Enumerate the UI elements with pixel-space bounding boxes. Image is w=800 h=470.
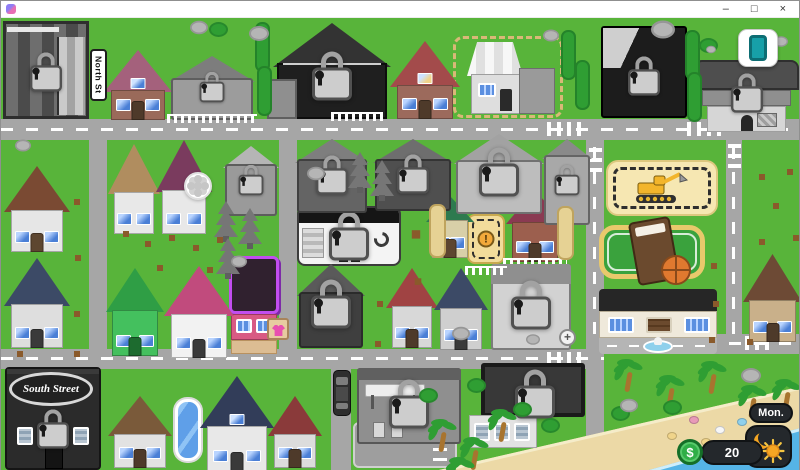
rock-icon — [543, 30, 559, 42]
tree-trunk — [247, 243, 253, 249]
pine-foliage — [702, 247, 726, 264]
bush-icon — [663, 400, 682, 415]
window — [146, 447, 161, 459]
car-roof — [336, 387, 348, 401]
locked-house[interactable] — [456, 134, 542, 214]
picket-fence — [331, 112, 383, 121]
window — [15, 231, 30, 243]
keyhole — [514, 300, 523, 309]
keyhole — [314, 299, 323, 308]
roof — [268, 396, 322, 436]
tree-trunk — [412, 230, 420, 238]
picket-fence — [167, 114, 257, 123]
window — [402, 98, 417, 110]
palm-tree-icon — [425, 416, 459, 452]
roof — [743, 254, 799, 302]
tree-trunk — [75, 255, 81, 261]
picket-fence — [465, 266, 507, 275]
lock-body — [239, 174, 264, 194]
window — [119, 447, 134, 459]
house-brown-roof[interactable] — [111, 396, 169, 468]
lock-shackle — [323, 155, 341, 169]
locked-south-street-bar[interactable]: South Street — [5, 367, 101, 470]
window — [44, 327, 59, 339]
pine-foliage — [65, 295, 89, 312]
door — [31, 233, 44, 252]
roof-line — [7, 27, 59, 32]
poplar-tree-icon — [429, 204, 446, 258]
tree-trunk — [793, 235, 799, 241]
tree-trunk — [74, 351, 80, 357]
poplar-tree-icon — [557, 206, 574, 260]
rock-icon — [249, 26, 269, 41]
bush-icon — [419, 388, 438, 403]
keyhole — [556, 177, 562, 183]
pine-tree-icon — [793, 164, 799, 206]
pine-tree-icon — [365, 306, 391, 348]
currency-symbol: $ — [686, 445, 693, 460]
pine-tree-icon — [64, 164, 90, 206]
marker-glyph: ! — [484, 233, 488, 245]
lock-shackle — [320, 280, 342, 297]
pine-tree-icon — [367, 266, 393, 308]
pine-tree-icon — [699, 302, 725, 344]
garage-door — [646, 317, 672, 333]
pine-foliage — [66, 239, 90, 256]
seashell-icon — [667, 432, 677, 440]
tree-trunk — [375, 341, 381, 347]
dollar-coin-icon: $ — [677, 439, 703, 465]
window — [478, 83, 496, 97]
app-window: – □ × — [0, 0, 800, 470]
pine-foliage — [405, 261, 431, 280]
rock-icon — [190, 21, 208, 35]
maximize-icon[interactable]: □ — [751, 2, 758, 17]
pine-tree-icon — [783, 200, 799, 242]
pine-foliage — [700, 321, 724, 338]
door — [419, 100, 432, 119]
padlock-icon — [731, 74, 763, 113]
window — [207, 337, 222, 349]
locked-house[interactable] — [299, 264, 363, 348]
palm-trunk — [438, 432, 446, 453]
attic-window — [418, 73, 433, 84]
canopy-post — [371, 395, 374, 409]
pine-tree-icon — [64, 276, 90, 318]
pine-foliage — [784, 219, 799, 236]
pool-deck — [173, 397, 203, 463]
rock-icon — [231, 256, 247, 268]
tree-trunk — [225, 273, 231, 279]
house-red-roof[interactable] — [393, 41, 457, 119]
pine-foliage — [738, 323, 762, 340]
cypress-tree-icon — [575, 60, 590, 110]
rear-window — [336, 403, 348, 409]
door — [134, 449, 147, 468]
palm-trunk — [498, 422, 506, 443]
palm-frond — [612, 363, 626, 381]
seashell-icon — [689, 416, 699, 424]
plus-badge[interactable]: + — [559, 329, 576, 346]
crosswalk — [589, 142, 602, 172]
gray-pine-tree-icon — [213, 201, 239, 243]
pine-tree-icon — [701, 228, 727, 270]
tree-trunk — [74, 199, 80, 205]
rock-icon — [452, 327, 470, 341]
window — [246, 450, 261, 462]
lock-shackle — [738, 74, 756, 88]
window-controls: – □ × — [723, 2, 794, 17]
lock-body — [329, 228, 369, 261]
window — [236, 319, 252, 333]
door — [231, 452, 244, 470]
pine-tree-icon — [64, 316, 90, 358]
window — [44, 231, 59, 243]
palm-frond — [486, 413, 500, 431]
rock-icon — [526, 334, 540, 345]
bush-icon — [467, 378, 486, 393]
construction-marker-icon: ! — [478, 231, 495, 248]
roof — [108, 144, 160, 194]
padlock-icon — [312, 51, 352, 100]
farmhouse[interactable] — [453, 36, 563, 118]
house-pink-roof[interactable] — [107, 50, 169, 120]
pine-foliage — [750, 223, 774, 240]
phone-icon — [749, 35, 767, 61]
palm-tree-icon — [443, 454, 477, 470]
tree-trunk — [357, 187, 363, 193]
door — [406, 329, 419, 348]
hatch-window — [757, 113, 777, 127]
side-panel — [302, 228, 324, 258]
window — [176, 337, 191, 349]
door — [741, 115, 753, 131]
window — [17, 427, 33, 445]
keyhole — [630, 71, 637, 78]
fuel-pump — [373, 422, 385, 438]
lot-spinner-button[interactable] — [184, 172, 212, 200]
keyhole — [399, 169, 406, 176]
door — [129, 337, 142, 356]
construction-plot-large[interactable] — [606, 160, 718, 216]
lock-shackle — [520, 281, 542, 298]
door — [132, 101, 145, 120]
lock-shackle — [488, 148, 510, 165]
lock-shackle — [398, 380, 420, 397]
attic-window — [230, 414, 245, 425]
palm-tree-icon — [611, 356, 645, 392]
tree-trunk — [17, 351, 23, 357]
excavator-icon — [630, 170, 694, 206]
tree-trunk — [157, 265, 163, 271]
lock-shackle — [37, 52, 55, 66]
money-value: 20 — [725, 445, 739, 460]
lock-shackle — [338, 212, 360, 229]
padlock-icon — [311, 280, 351, 329]
pine-foliage — [65, 183, 89, 200]
crosswalk — [728, 142, 741, 168]
padlock-icon — [200, 72, 225, 102]
shop-base — [231, 340, 277, 354]
windshield — [336, 377, 348, 385]
pine-tree-icon — [737, 304, 763, 346]
pine-tree-icon — [404, 240, 433, 286]
road-vertical — [89, 140, 107, 349]
palm-frond — [770, 383, 784, 401]
padlock-icon — [555, 165, 580, 195]
tshirt-sign — [267, 318, 289, 340]
road-dash — [1, 128, 799, 131]
locked-mansion[interactable] — [694, 60, 799, 132]
house-green[interactable] — [109, 268, 161, 356]
pine-foliage — [704, 285, 728, 302]
padlock-icon — [239, 164, 264, 194]
tree-trunk — [207, 267, 213, 273]
roof — [4, 258, 70, 306]
palm-frond — [696, 365, 710, 383]
window — [608, 317, 634, 333]
roof — [4, 166, 70, 212]
padlock-icon — [37, 409, 69, 448]
window — [73, 427, 89, 445]
crosswalk — [547, 122, 583, 136]
padlock-icon — [30, 52, 62, 91]
bush-icon — [513, 402, 532, 417]
cypress-tree-icon — [561, 30, 576, 80]
rock-icon — [15, 140, 31, 152]
town-map: North St — [1, 18, 799, 470]
pine-foliage — [65, 335, 89, 352]
door — [289, 449, 302, 468]
palm-tree-icon — [695, 358, 729, 394]
bush-icon — [541, 418, 560, 433]
house-red-roof[interactable] — [271, 396, 319, 468]
pine-foliage — [370, 179, 394, 196]
palm-trunk — [708, 374, 716, 395]
basketball-icon — [661, 255, 691, 285]
tree-trunk — [747, 339, 753, 345]
locked-skyscraper[interactable] — [3, 21, 89, 119]
keyhole — [32, 68, 39, 75]
pine-tree-icon — [147, 230, 173, 272]
keyhole — [240, 176, 246, 182]
pine-foliage — [148, 249, 172, 266]
door — [193, 339, 206, 358]
window — [145, 99, 160, 111]
money-counter: 20 — [701, 440, 763, 465]
lock-shackle — [44, 409, 62, 423]
pine-foliage — [214, 220, 238, 237]
house-navy-big[interactable] — [203, 376, 271, 470]
attic-window — [131, 78, 146, 89]
padlock-icon — [479, 148, 519, 197]
bush-icon — [209, 22, 228, 37]
pine-tree-icon — [65, 220, 91, 262]
palm-frond — [736, 389, 750, 407]
lock-body — [511, 297, 551, 330]
lock-shackle — [635, 56, 653, 70]
lock-body — [30, 65, 62, 91]
door — [500, 89, 512, 111]
locked-building-dark[interactable] — [601, 26, 687, 118]
lock-shackle — [404, 154, 422, 168]
app-icon — [6, 4, 16, 14]
seashell-icon — [715, 426, 725, 434]
pine-foliage — [399, 208, 433, 232]
rock-icon — [706, 46, 716, 54]
window — [213, 450, 228, 462]
lock-shackle — [205, 72, 219, 83]
rock-icon — [620, 399, 638, 413]
rock-icon — [307, 167, 325, 181]
day-badge: Mon. — [749, 403, 793, 423]
keyhole — [332, 231, 341, 240]
title-bar: – □ × — [1, 1, 799, 18]
tree-trunk — [709, 337, 715, 343]
lock-body — [311, 296, 351, 329]
tree-trunk — [379, 195, 385, 201]
keyhole — [733, 89, 740, 96]
road-dash — [1, 357, 604, 360]
pine-foliage — [8, 335, 32, 352]
signboard-strip — [635, 223, 666, 237]
window — [116, 99, 131, 111]
close-icon[interactable]: × — [780, 2, 786, 17]
house-body — [471, 74, 521, 114]
street-sign-north: North St — [90, 49, 107, 101]
house-brown-roof[interactable] — [7, 166, 67, 252]
flower-icon — [194, 182, 202, 190]
lock-body — [555, 175, 580, 195]
minimize-icon[interactable]: – — [723, 2, 729, 17]
padlock-icon — [628, 56, 660, 95]
keyhole — [315, 70, 324, 79]
keyhole — [482, 167, 491, 176]
roof — [106, 268, 164, 312]
fountain — [643, 340, 673, 353]
car — [333, 370, 351, 416]
pine-foliage — [366, 325, 390, 342]
pine-foliage — [238, 227, 262, 244]
door — [766, 323, 779, 342]
pine-tree-icon — [7, 316, 33, 358]
keyhole — [201, 83, 207, 89]
padlock-icon — [511, 281, 551, 330]
roof-band — [357, 368, 461, 380]
cypress-tree-icon — [687, 72, 702, 122]
keyhole — [518, 388, 527, 397]
lock-body — [312, 67, 352, 100]
annex — [519, 68, 555, 114]
rock-icon — [651, 21, 675, 39]
locked-house[interactable] — [171, 56, 253, 120]
seashell-icon — [737, 418, 747, 426]
day-label: Mon. — [758, 407, 784, 419]
palm-trunk — [624, 372, 632, 393]
locked-barn[interactable] — [273, 23, 391, 119]
lock-body — [200, 81, 225, 101]
phone-button[interactable] — [738, 29, 778, 67]
padlock-icon — [389, 380, 429, 429]
pine-tree-icon — [749, 204, 775, 246]
rock-icon — [741, 368, 761, 383]
street-sign-label: South Street — [23, 383, 79, 395]
window — [433, 98, 448, 110]
lock-body — [37, 422, 69, 448]
palm-frond — [654, 379, 668, 397]
tree-trunk — [759, 239, 765, 245]
palm-frond — [426, 423, 440, 441]
street-sign-label: North St — [94, 56, 104, 94]
swimming-pool — [175, 399, 201, 461]
tree-trunk — [123, 231, 129, 237]
lock-body — [731, 86, 763, 112]
street-sign-south: South Street — [9, 372, 93, 406]
lock-body — [479, 164, 519, 197]
lock-shackle — [321, 51, 343, 68]
pine-foliage — [368, 285, 392, 302]
lock-shackle — [524, 369, 546, 386]
lock-body — [628, 69, 660, 95]
cypress-tree-icon — [257, 66, 272, 116]
keyhole — [39, 424, 46, 431]
road-dash — [732, 140, 735, 334]
gray-pine-tree-icon — [369, 160, 395, 202]
padlock-icon — [329, 212, 369, 261]
keyhole — [392, 399, 401, 408]
roof — [108, 396, 172, 436]
pine-foliage — [794, 183, 799, 200]
tree-trunk — [415, 278, 422, 285]
locked-carwash[interactable] — [297, 206, 401, 266]
lock-shackle — [244, 164, 258, 175]
tshirt-icon — [272, 325, 285, 336]
